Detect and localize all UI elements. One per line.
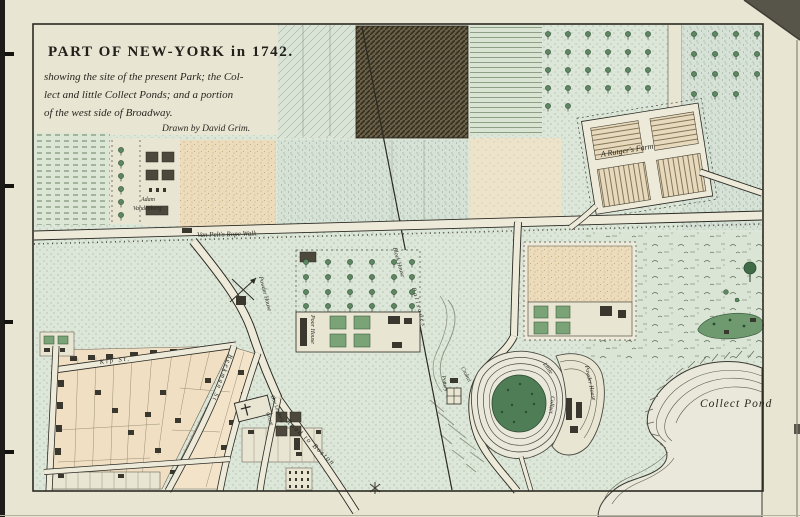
farm-plot — [650, 112, 698, 150]
field-strips-top — [278, 25, 356, 138]
map-canvas: A Rutger's Farm — [0, 0, 800, 517]
small-lot-glyph-block — [286, 468, 312, 490]
field-pale-tan — [470, 138, 562, 226]
map-credit: Drawn by David Grim. — [161, 124, 250, 134]
collect-pond-label: Collect Pond — [700, 398, 772, 410]
adam-vandenberg-label-1: Adam — [140, 197, 156, 203]
field-tan-rope-walk — [180, 140, 276, 228]
field-mid-left — [278, 140, 356, 228]
field-hatched-west — [34, 133, 110, 225]
map-subtitle-1: showing the site of the present Park; th… — [44, 71, 244, 83]
map-sheet: A Rutger's Farm — [0, 0, 800, 517]
poor-house-building — [300, 318, 307, 346]
farm-plot — [656, 153, 705, 197]
field-mid-center — [356, 140, 468, 228]
poor-house-label: Poor House — [309, 314, 315, 344]
binding-edge — [0, 0, 5, 517]
field-lined-top — [470, 25, 542, 135]
fenced-compound — [524, 242, 636, 340]
rope-walk-label: Van Pelt's Rope Walk — [197, 229, 257, 239]
adam-vandenberg-label-2: Vandenberg — [133, 206, 161, 212]
map-title: PART OF NEW-YORK in 1742. — [48, 44, 294, 60]
orchard-lane — [668, 25, 682, 119]
farm-plot — [597, 162, 650, 207]
city-block-lots-south — [52, 472, 160, 489]
map-subtitle-2: lect and little Collect Ponds; and a por… — [44, 89, 234, 101]
map-subtitle-3: of the west side of Broadway. — [44, 107, 173, 119]
